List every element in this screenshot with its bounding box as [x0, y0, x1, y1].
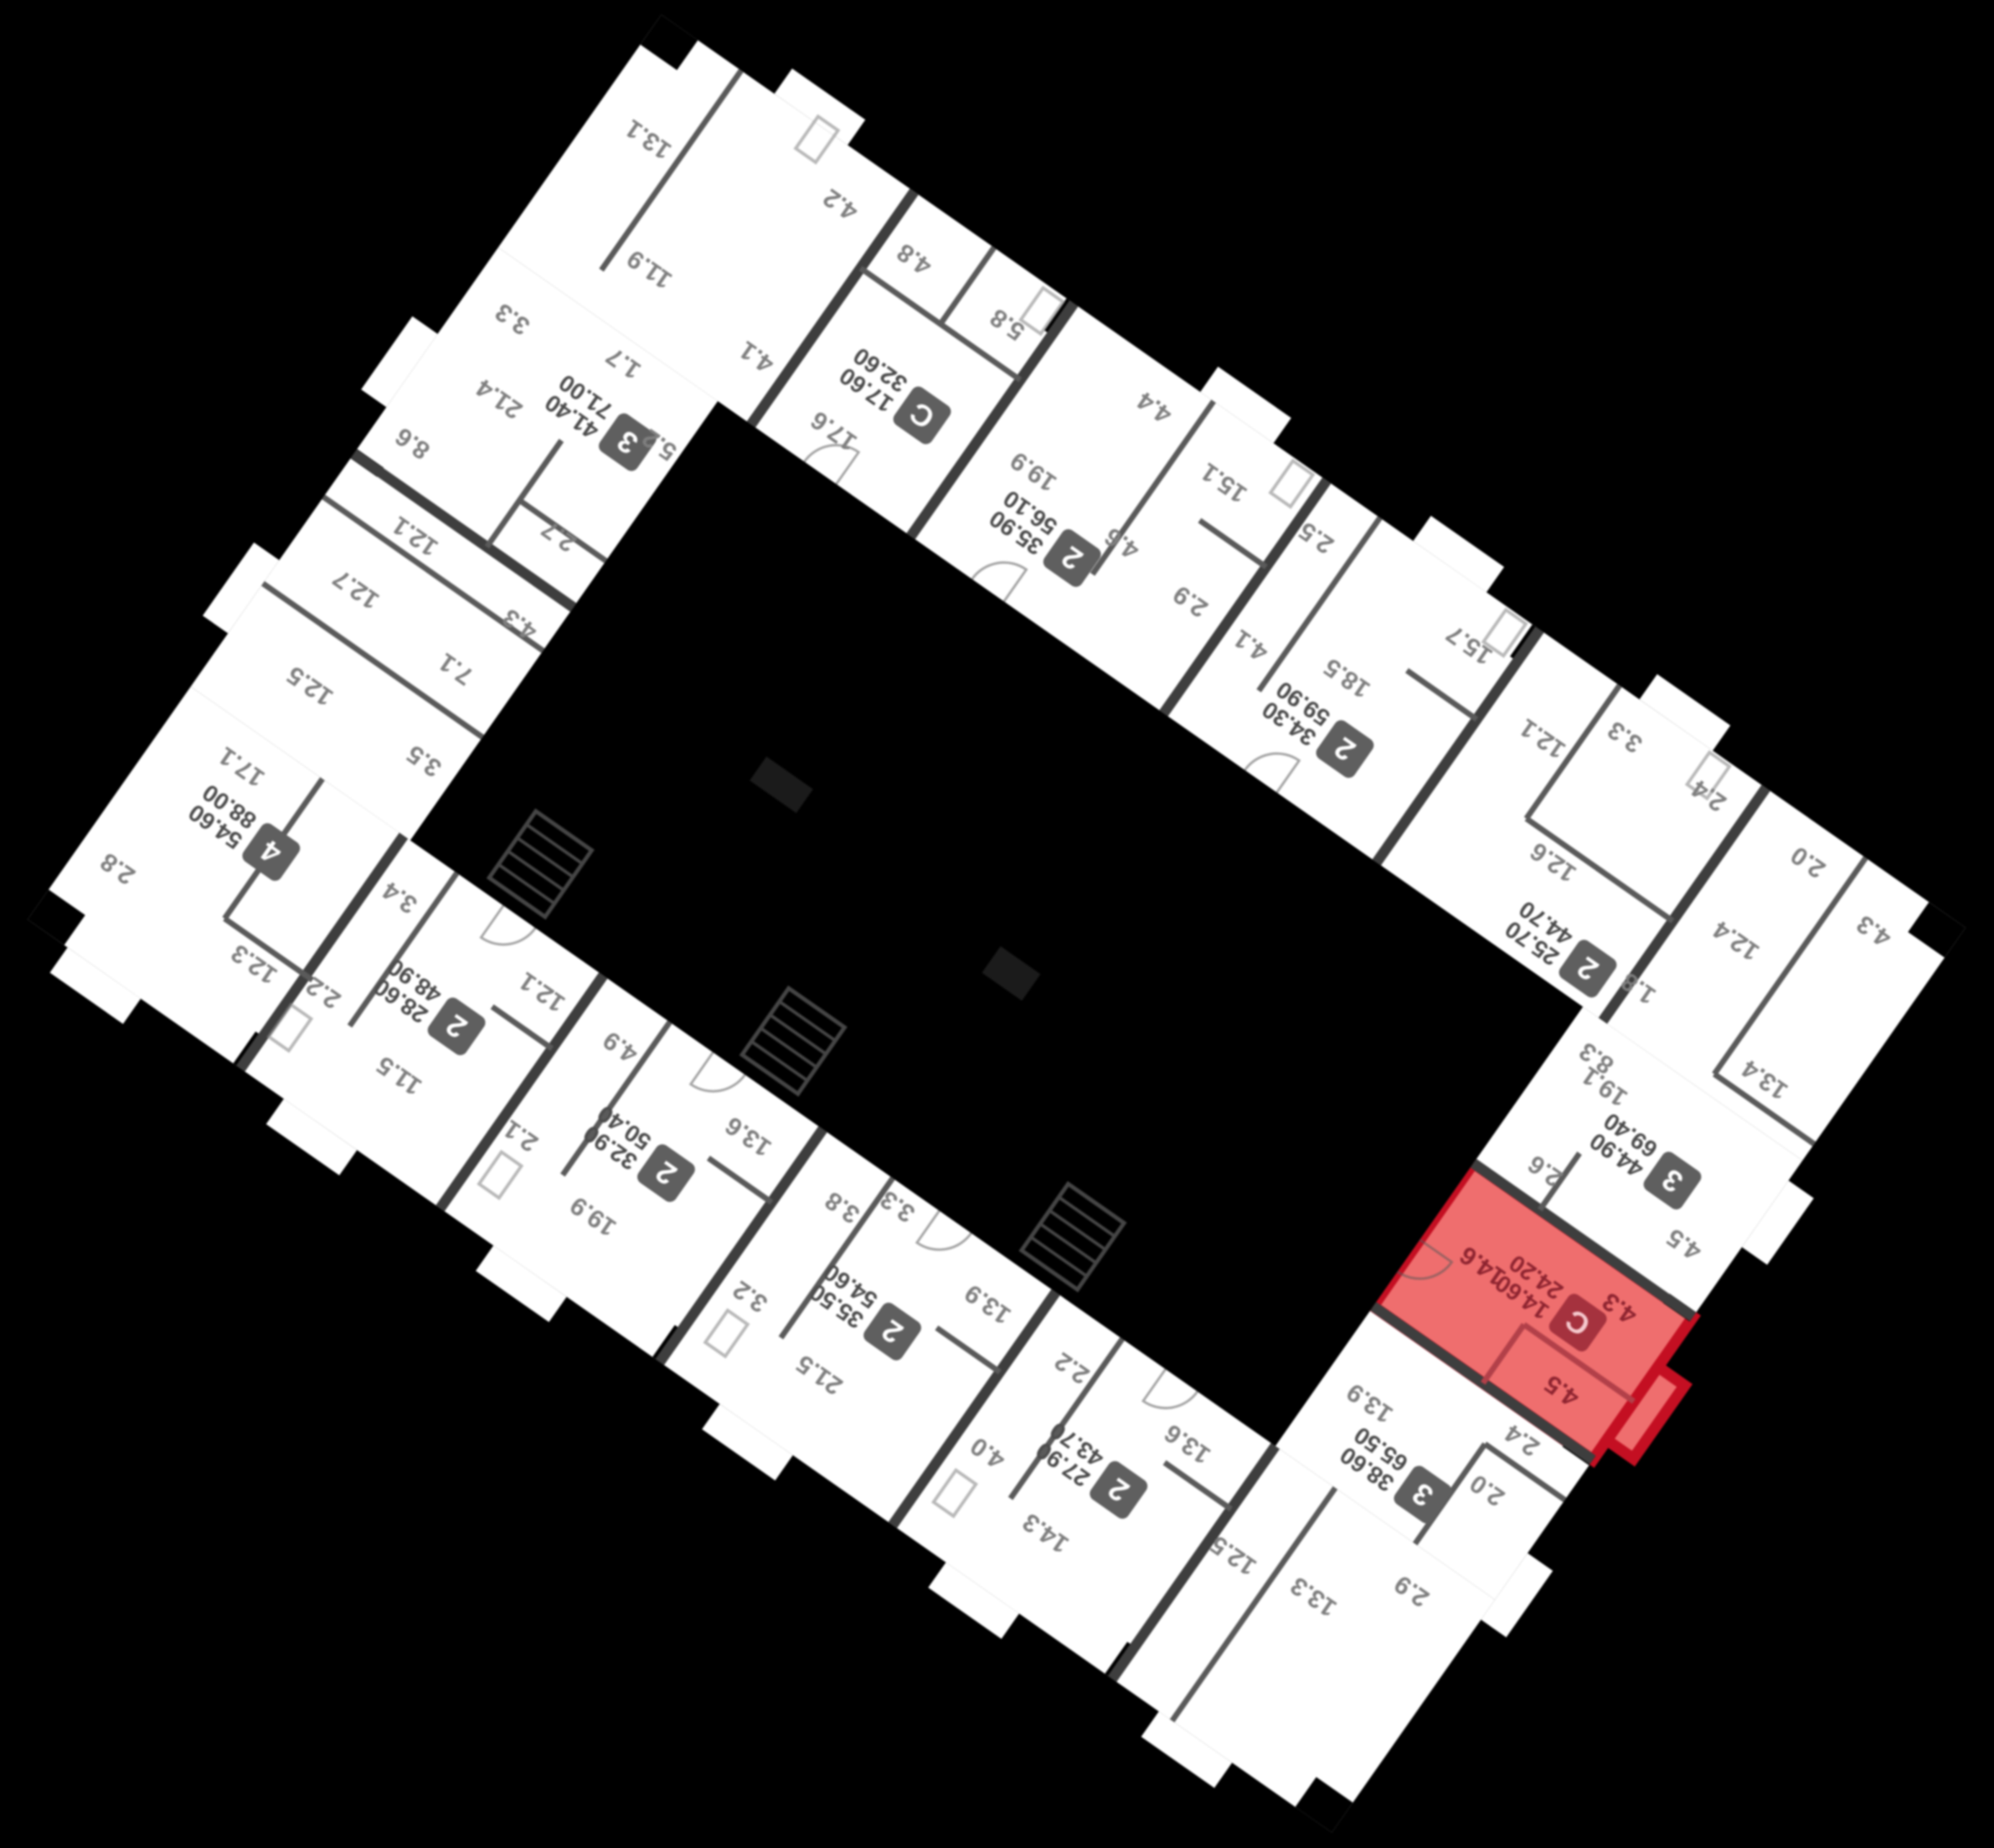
floor-plan: 338.6065.5013.912.513.32.92.02.4227.9043…	[0, 0, 1994, 1848]
floorplan-canvas: 338.6065.5013.912.513.32.92.02.4227.9043…	[0, 0, 1994, 1848]
